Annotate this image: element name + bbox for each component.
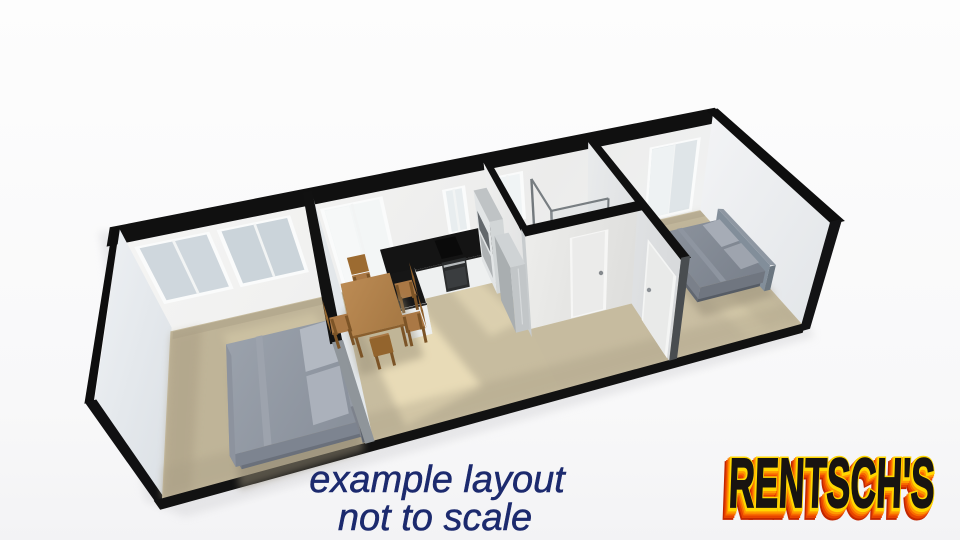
svg-text:not to scale: not to scale (338, 497, 532, 539)
svg-text:RENTSCH'S: RENTSCH'S (728, 444, 937, 522)
svg-text:example layout: example layout (309, 459, 566, 501)
